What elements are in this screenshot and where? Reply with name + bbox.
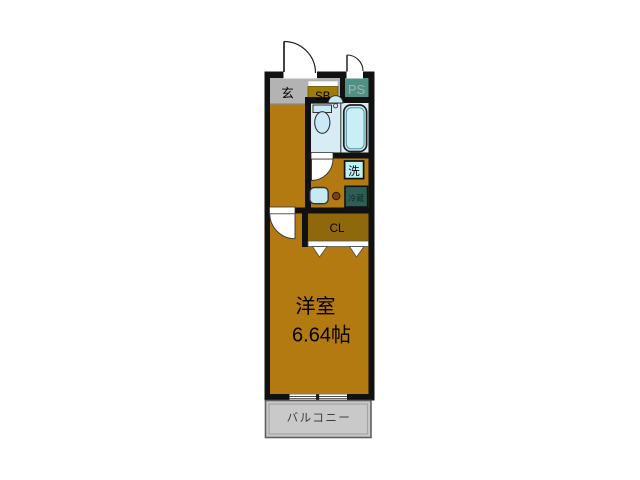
closet-label: CL <box>330 223 345 235</box>
toilet-bowl <box>315 112 330 134</box>
bathtub <box>344 105 367 152</box>
wall-bath-bottom <box>333 153 375 159</box>
pipe-space-opening <box>347 71 364 79</box>
ps-door-arc <box>347 55 363 71</box>
balcony-label: バルコニー <box>287 412 352 425</box>
floorplan-svg: 玄 SB PS 洗 冷蔵 CL 洋室 6.64帖 バルコニー <box>0 0 640 480</box>
room-door-leaf <box>270 207 296 214</box>
bathroom-door-leaf <box>311 153 333 160</box>
burner-icon <box>333 192 340 199</box>
shoe-box-counter <box>308 81 338 87</box>
window-center-tick <box>316 394 319 400</box>
entrance-opening <box>284 71 318 79</box>
shoe-box-label: SB <box>315 91 331 103</box>
entrance-label: 玄 <box>281 86 294 101</box>
wall-closet-left <box>302 208 308 248</box>
floorplan-image: 玄 SB PS 洗 冷蔵 CL 洋室 6.64帖 バルコニー <box>0 0 640 480</box>
wall-right <box>369 72 375 401</box>
wall-hall-closet <box>302 208 375 214</box>
room-name-label: 洋室 <box>296 295 336 318</box>
refrigerator-label: 冷蔵 <box>348 193 364 203</box>
washer-label: 洗 <box>348 165 360 178</box>
wall-left <box>265 72 271 401</box>
room-size-label: 6.64帖 <box>292 324 351 347</box>
closet-door-track <box>308 241 369 247</box>
kitchen-sink <box>310 188 328 204</box>
entrance-door-arc <box>284 42 316 74</box>
pipe-space-label: PS <box>348 82 366 97</box>
